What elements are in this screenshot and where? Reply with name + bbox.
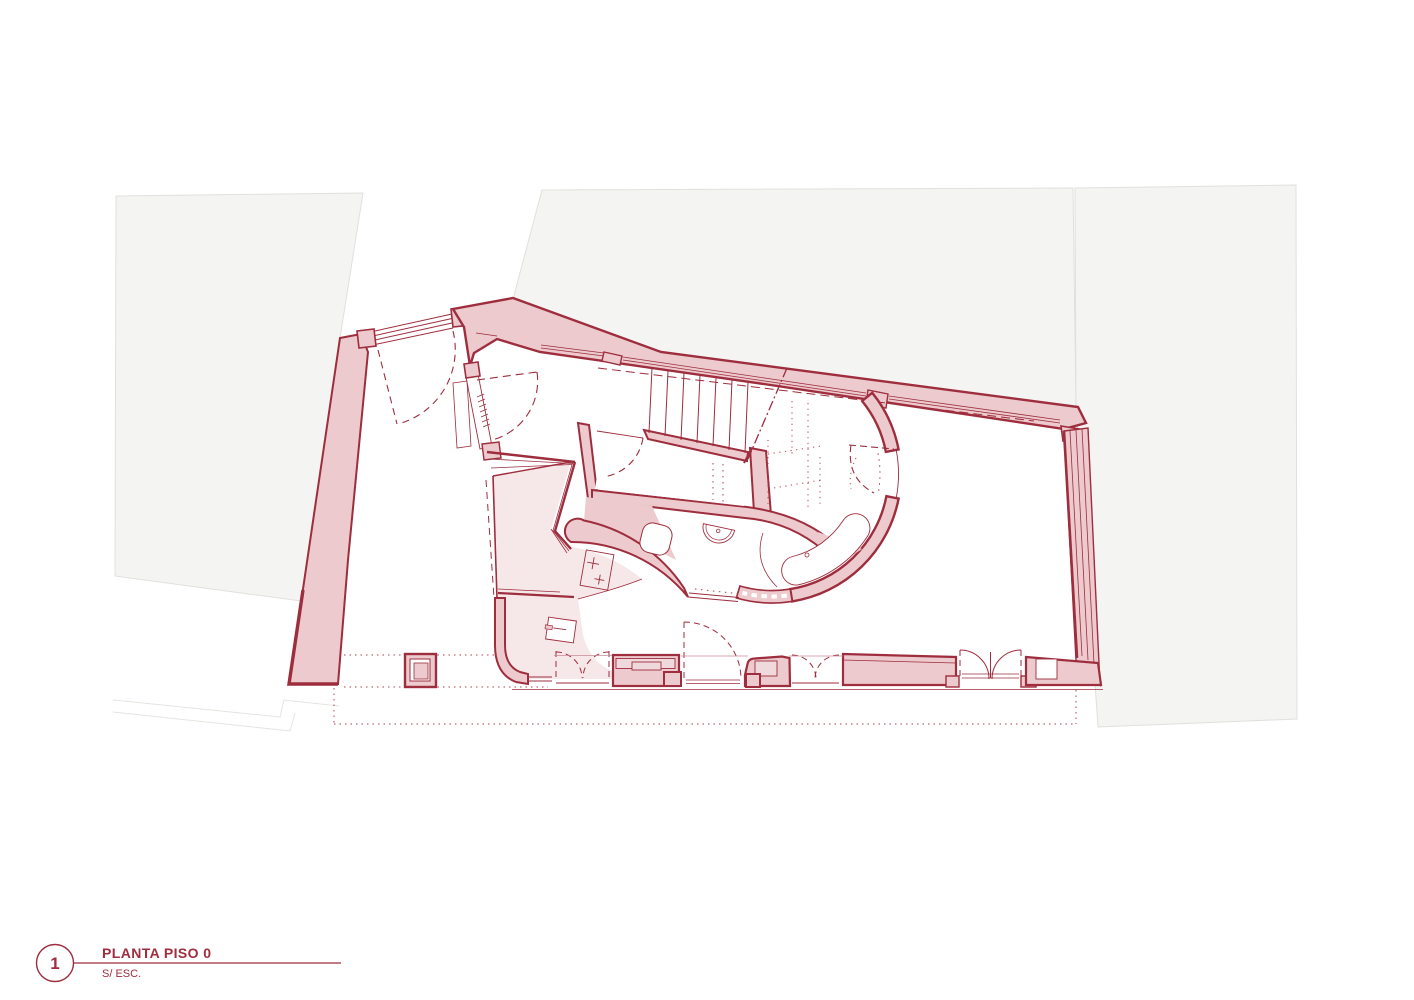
svg-text:PLANTA PISO 0: PLANTA PISO 0 <box>102 945 211 961</box>
svg-text:S/ ESC.: S/ ESC. <box>102 968 141 980</box>
svg-text:1: 1 <box>50 954 59 973</box>
